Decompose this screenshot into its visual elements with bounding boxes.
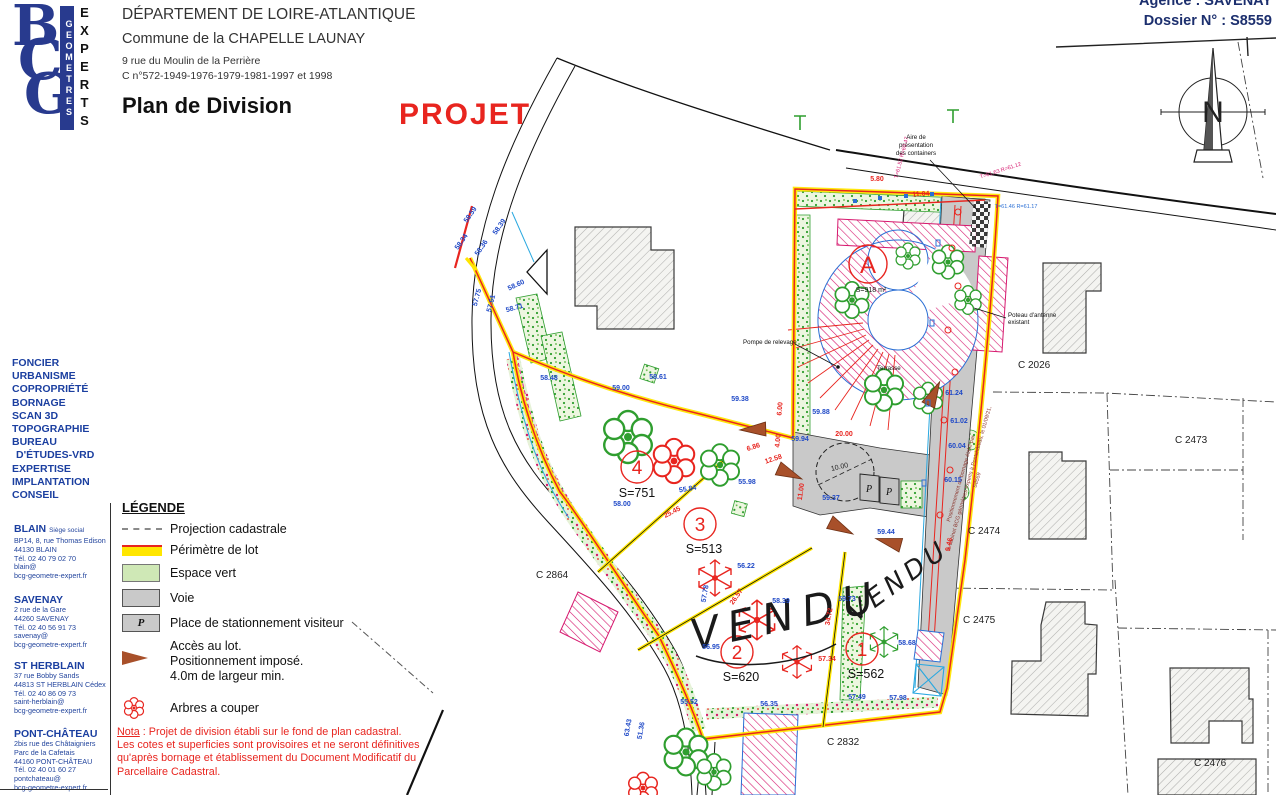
measurement: 57.98 — [889, 695, 907, 702]
legend-label-projection: Projection cadastrale — [170, 522, 287, 536]
legend-label-arbres: Arbres a couper — [170, 701, 259, 715]
measurement: 56.22 — [737, 563, 755, 570]
parking-p-label: P — [885, 487, 892, 498]
measurement: 58.48 — [540, 375, 558, 382]
cadastral-refs: C n°572-1949-1976-1979-1981-1997 et 1998 — [122, 70, 415, 82]
parcel-label: C 2474 — [968, 526, 1001, 537]
title-block: B C G GEOMETRES EXPERTS DÉPARTEMENT DE L… — [8, 4, 415, 132]
service-item: IMPLANTATION — [12, 476, 94, 489]
measurement: 58.36 — [474, 239, 490, 257]
lot-marker-4: 4S=751 — [619, 451, 656, 500]
measurement: 58.39 — [492, 218, 508, 236]
plan-de-division-scan: P P — [0, 0, 1276, 795]
measurement: 55.52 — [680, 699, 698, 706]
lot-surface: S=751 — [619, 486, 656, 500]
service-item: BUREAU — [12, 436, 94, 449]
parcel-label: C 2473 — [1175, 435, 1208, 446]
measurement: 56.95 — [702, 644, 720, 651]
service-item: URBANISME — [12, 370, 94, 383]
dossier-number: Dossier N° : S8559 — [1000, 13, 1272, 29]
logo-experts-text: EXPERTS — [76, 4, 92, 132]
legend-label-acces: Positionnement imposé. — [170, 654, 303, 669]
measurement: 55.98 — [738, 479, 756, 486]
services-list: FONCIER URBANISME COPROPRIÉTÉ BORNAGE SC… — [12, 357, 94, 502]
lot-surface: S=620 — [723, 670, 760, 684]
measurement: 63.43 — [624, 718, 634, 737]
parcel-label: C 2026 — [1018, 360, 1051, 371]
sidebar-divider — [110, 503, 111, 795]
voie-swatch — [122, 589, 160, 607]
legend: LÉGENDE Projection cadastrale Périmètre … — [122, 500, 372, 720]
measurement: 4.00 — [774, 434, 782, 448]
measurement: 51.36 — [637, 721, 647, 740]
measurement: 58.61 — [649, 374, 667, 381]
measurement: 56.35 — [760, 701, 778, 708]
sidebar-bottom-rule — [0, 789, 108, 790]
measurement: 59.38 — [731, 396, 749, 403]
measurement: 59.88 — [812, 409, 830, 416]
measurement: 58.68 — [898, 640, 916, 647]
measurement: 61.24 — [945, 390, 963, 397]
measurement: 6.86 — [746, 442, 761, 453]
parcel-label: C 2475 — [963, 615, 996, 626]
nota-warning: Nota : Projet de division établi sur le … — [117, 726, 437, 779]
legend-label-voie: Voie — [170, 591, 194, 605]
arbres-couper-icon — [122, 696, 146, 720]
terrasse-label: Terrasse — [877, 365, 901, 372]
measurement: 11.04 — [912, 191, 930, 199]
measurement: 6.00 — [776, 402, 784, 416]
office-savenay: SAVENAY 2 rue de la Gare 44260 SAVENAY T… — [14, 594, 114, 650]
measurement: 59.00 — [612, 385, 630, 392]
commune-title: Commune de la CHAPELLE LAUNAY — [122, 31, 415, 47]
service-item: COPROPRIÉTÉ — [12, 383, 94, 396]
lot-surface: S=918 m² — [856, 287, 887, 294]
legend-label-acces: 4.0m de largeur min. — [170, 669, 303, 684]
service-item: CONSEIL — [12, 489, 94, 502]
poteau-label: Poteau d'antenne — [1008, 312, 1057, 319]
measurement: 60.15 — [944, 477, 962, 484]
measurement: 58.00 — [613, 501, 631, 508]
triangle-marker — [527, 250, 547, 294]
office-tag: Siège social — [49, 527, 84, 534]
measurement: 60.04 — [948, 443, 966, 450]
office-line: bcg-geometre-expert.fr — [14, 641, 114, 650]
measurement: 61.02 — [950, 418, 968, 425]
legend-label-espace-vert: Espace vert — [170, 566, 236, 580]
office-st-herblain: ST HERBLAIN 37 rue Bobby Sands 44813 ST … — [14, 660, 114, 716]
perimetre-swatch — [122, 545, 162, 556]
legend-label-stationnement: Place de stationnement visiteur — [170, 616, 344, 630]
agency-label: Agence : SAVENAY — [1000, 0, 1272, 9]
legend-label-perimetre: Périmètre de lot — [170, 543, 258, 557]
page-title: Plan de Division — [122, 93, 415, 119]
measurement: 59.94 — [791, 436, 809, 443]
office-name: BLAIN — [14, 523, 46, 535]
service-item: SCAN 3D — [12, 410, 94, 423]
projet-stamp: PROJET — [399, 98, 531, 132]
office-line: bcg-geometre-expert.fr — [14, 572, 114, 581]
measurement: 5.80 — [870, 176, 884, 183]
nota-label: Nota — [117, 726, 140, 738]
t-marker — [794, 116, 806, 130]
lot-surface: S=562 — [848, 667, 885, 681]
measurement: 58.59 — [463, 206, 479, 224]
measurement: T=61.52 R=60.47 — [894, 136, 911, 179]
bcg-logo: B C G GEOMETRES EXPERTS — [8, 4, 108, 132]
service-item: BORNAGE — [12, 397, 94, 410]
title-block-rule — [1056, 37, 1276, 56]
measurement: 20.00 — [835, 431, 853, 438]
parking-p-label: P — [865, 484, 872, 495]
poteau-label: existant — [1008, 319, 1030, 326]
measurement: 59.44 — [877, 529, 895, 536]
parcel-label: C 2476 — [1194, 758, 1227, 769]
measurement: 59.73 — [838, 596, 856, 603]
measurement: 57.49 — [848, 694, 866, 701]
pompe-label: Pompe de relevage — [743, 339, 797, 346]
parking-swatch: P — [122, 614, 160, 632]
north-label: N — [1202, 96, 1224, 129]
measurement: 58.60 — [507, 279, 526, 293]
lot-number: 3 — [695, 515, 706, 536]
parcel-label: C 2832 — [827, 737, 860, 748]
measurement: 57.34 — [818, 656, 836, 663]
nota-line: Parcellaire Cadastral. — [117, 766, 437, 779]
acces-arrow-icon — [122, 651, 148, 665]
measurement: 58.34 — [454, 233, 470, 251]
dossier-block: Agence : SAVENAY Dossier N° : S8559 — [1000, 0, 1272, 29]
office-pont-chateau: PONT-CHÂTEAU 2bis rue des Châtaigniers P… — [14, 728, 114, 793]
office-line: bcg-geometre-expert.fr — [14, 707, 114, 716]
legend-title: LÉGENDE — [122, 500, 372, 515]
site-address: 9 rue du Moulin de la Perrière — [122, 55, 415, 67]
lot-number: 4 — [632, 458, 643, 479]
measurement: 25.45 — [663, 506, 682, 520]
service-item: D'ÉTUDES-VRD — [12, 449, 94, 462]
measurement: 57.78 — [701, 584, 711, 603]
office-blain: BLAINSiège social BP14, 8, rue Thomas Ed… — [14, 519, 114, 581]
measurement: 55.84 — [678, 485, 697, 495]
parcel-label: C 2864 — [536, 570, 569, 581]
lot-marker-3: 3S=513 — [684, 508, 722, 556]
measurement: 59.37 — [822, 495, 840, 502]
projection-swatch — [122, 528, 162, 530]
service-item: TOPOGRAPHIE — [12, 423, 94, 436]
legend-label-acces: Accès au lot. — [170, 639, 303, 654]
t-marker — [947, 110, 959, 123]
lot-number: 1 — [857, 640, 868, 661]
measurement: 58.39 — [772, 598, 790, 605]
lot-surface: S=513 — [686, 542, 723, 556]
logo-geometres-text: GEOMETRES — [60, 6, 74, 130]
service-item: FONCIER — [12, 357, 94, 370]
department-title: DÉPARTEMENT DE LOIRE-ATLANTIQUE — [122, 6, 415, 24]
lot-number: A — [860, 252, 876, 279]
nota-line: Les cotes et superficies sont provisoire… — [117, 739, 437, 752]
nota-line: : Projet de division établi sur le fond … — [140, 726, 402, 738]
measurement: T=61.46 R=61.17 — [995, 204, 1038, 210]
espace-vert-swatch — [122, 564, 160, 582]
service-item: EXPERTISE — [12, 463, 94, 476]
nota-line: qu'après bornage et établissement du Doc… — [117, 752, 437, 765]
